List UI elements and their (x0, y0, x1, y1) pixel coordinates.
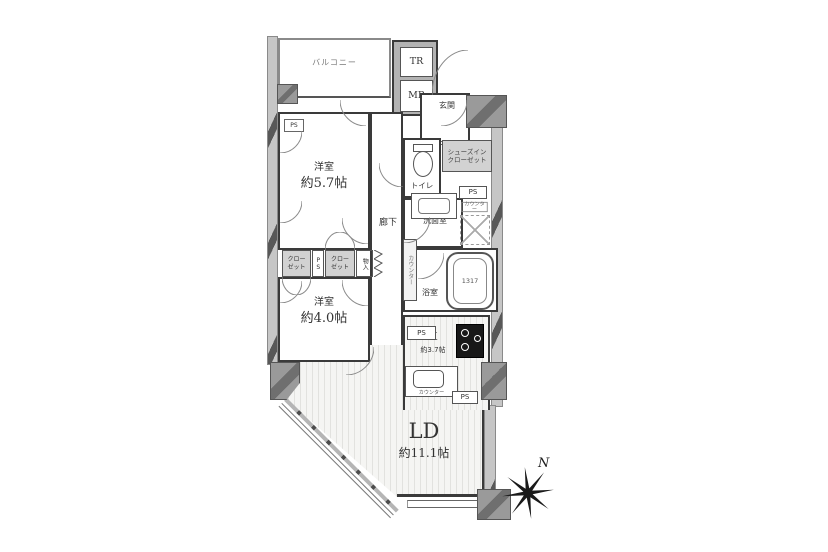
ld-bottom-wall (397, 494, 484, 497)
door-arc-balcony (340, 100, 366, 126)
trunk-room-box: TR (400, 47, 433, 77)
entrance-column (466, 95, 507, 128)
kitchen-column (481, 362, 507, 400)
kitchen-sink (413, 370, 444, 388)
ld-bottom-window (407, 500, 479, 508)
burner (461, 329, 469, 337)
storage: 物入 (356, 250, 373, 277)
door-arc-toilet (379, 163, 403, 187)
floor-plan: バルコニー TR MB 玄関 廊下 トイレ シューズイン クローゼット 洗面室 … (0, 0, 828, 552)
vanity-sink (418, 198, 450, 214)
door-arc-bedroom2 (342, 280, 368, 306)
hallway-label: 廊下 (373, 218, 403, 229)
burner (474, 335, 481, 342)
bedroom-2-size: 約4.0帖 (280, 311, 368, 327)
laundry-space (460, 215, 490, 245)
compass-star-icon (499, 464, 557, 522)
window-arc-2 (280, 201, 302, 223)
balcony-label: バルコニー (280, 58, 389, 68)
bathtub-inner: 1317 (453, 258, 487, 304)
ps-box-kitchen-top: PS (407, 326, 436, 340)
bathtub: 1317 (446, 252, 494, 310)
folding-door (374, 250, 383, 277)
balcony-column (277, 84, 298, 104)
kitchen-counter: カウンター (405, 366, 458, 397)
kitchen-size: 約3.7帖 (408, 346, 458, 355)
washroom-counter: カウンター (461, 202, 487, 212)
right-wall-lower (484, 405, 496, 491)
kitchen-counter-label: カウンター (410, 389, 453, 395)
hallway: 廊下 (370, 112, 403, 345)
bedroom-1-size: 約5.7帖 (280, 176, 368, 192)
window-arc-1 (280, 131, 302, 153)
ps-box-washroom: PS (459, 186, 487, 199)
ps-box-kitchen-bottom: PS (452, 391, 478, 404)
burner (461, 343, 469, 351)
closet-right: クロー ゼット (325, 250, 355, 277)
door-arc-washroom (404, 217, 430, 243)
living-dining-size: 約11.1帖 (374, 446, 474, 461)
closet-left-doors-arc (282, 277, 311, 295)
door-arc-front-door (432, 50, 468, 95)
living-dining-name: LD (374, 418, 474, 444)
toilet-label: トイレ (405, 181, 439, 190)
compass-north-label: N (538, 456, 549, 471)
stove (456, 324, 484, 358)
closet-left: クロー ゼット (282, 250, 311, 277)
vanity (411, 193, 457, 219)
shoes-in-closet: シューズイン クローゼット (442, 140, 492, 172)
toilet-bowl (413, 151, 433, 177)
bath-side-counter: カウンター (403, 239, 417, 301)
bedroom-1-name: 洋室 (280, 162, 368, 175)
ps-strip: PS (312, 250, 324, 277)
door-arc-entrance (441, 100, 467, 126)
toilet: トイレ (403, 138, 441, 198)
closet-right-doors-arc (325, 232, 355, 250)
door-arc-bathroom (418, 253, 444, 279)
door-arc-ld (346, 347, 374, 375)
